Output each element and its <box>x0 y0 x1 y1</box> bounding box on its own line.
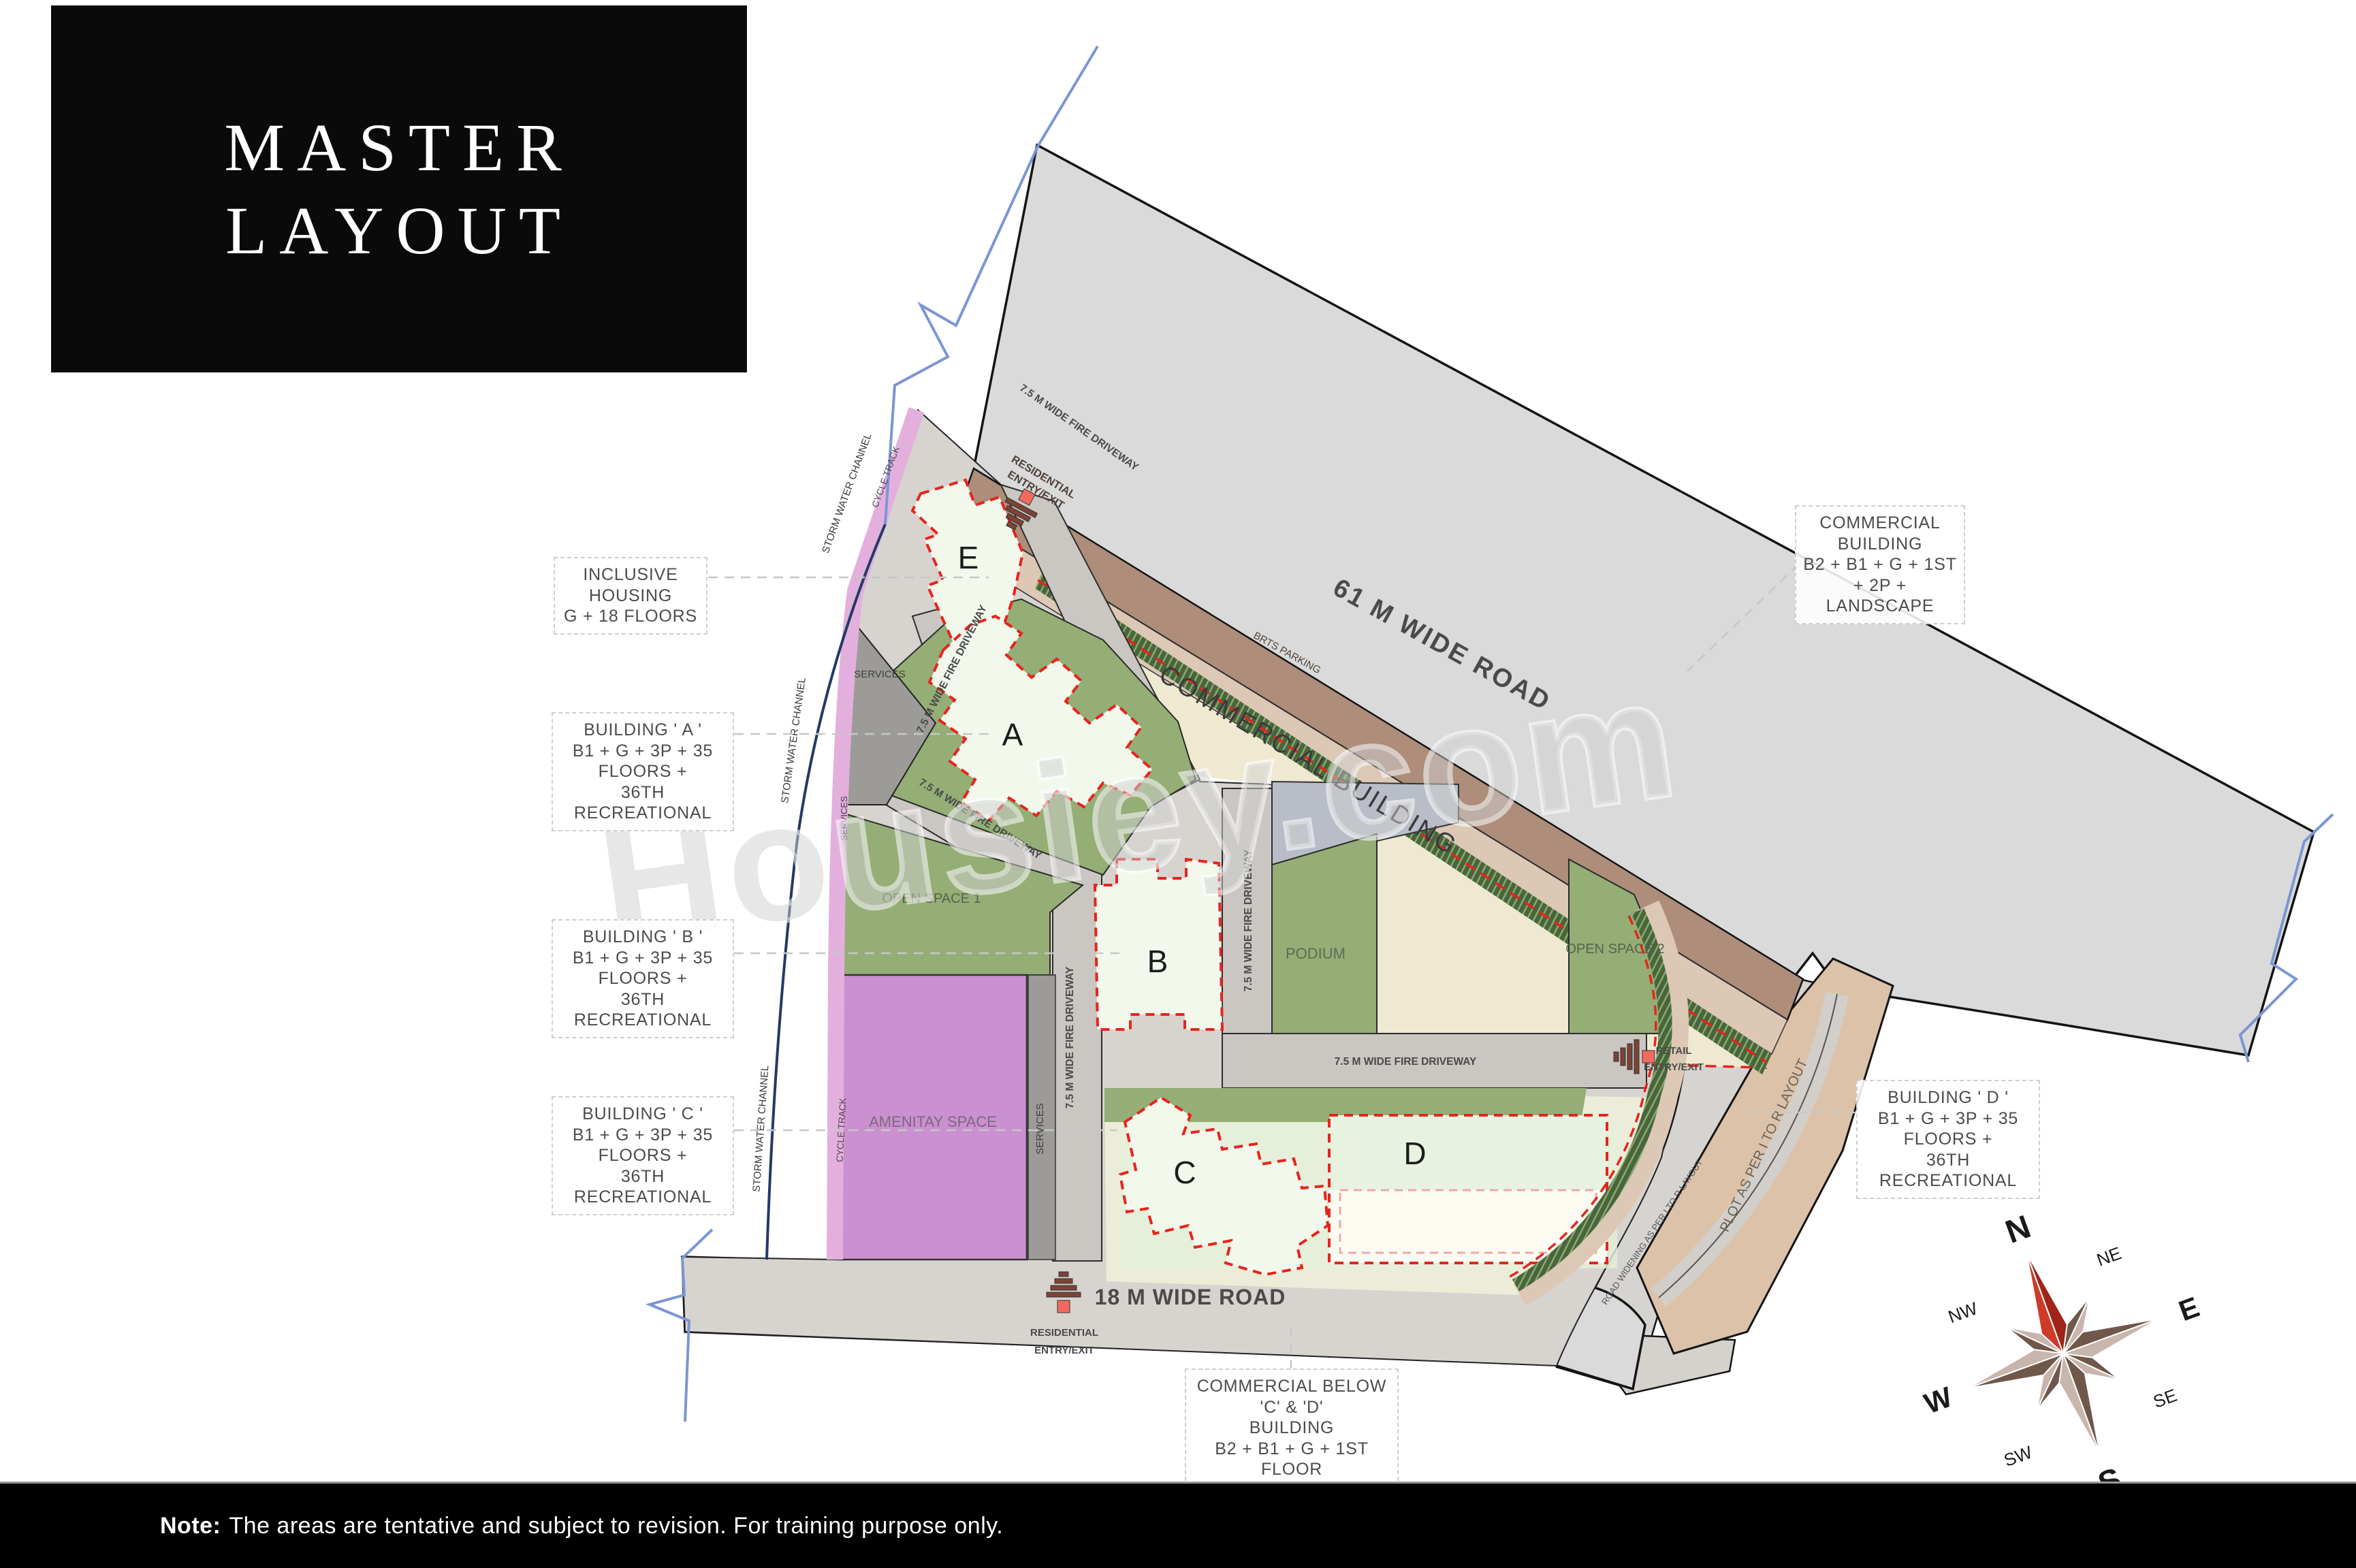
callout-building-a: BUILDING ' A ' B1 + G + 3P + 35 FLOORS +… <box>552 712 734 831</box>
services-label-3: SERVICES <box>1034 1103 1046 1155</box>
callout-line: B1 + G + 3P + 35 FLOORS + <box>1862 1108 2035 1150</box>
services-label-1: SERVICES <box>854 669 906 680</box>
building-e-label: E <box>958 540 979 575</box>
building-d-label: D <box>1403 1136 1426 1171</box>
callout-commercial: COMMERCIAL BUILDING B2 + B1 + G + 1ST + … <box>1795 505 1965 624</box>
callout-line: BUILDING ' B ' <box>557 927 729 948</box>
fire-driveway-label-6: 7.5 M WIDE FIRE DRIVEWAY <box>1064 966 1076 1108</box>
callout-line: LANDSCAPE <box>1800 596 1960 617</box>
note-label: Note: <box>160 1513 221 1539</box>
residential-bottom-line2: ENTRY/EXIT <box>1034 1345 1094 1356</box>
callout-line: INCLUSIVE HOUSING <box>559 564 702 606</box>
callout-building-d: BUILDING ' D ' B1 + G + 3P + 35 FLOORS +… <box>1856 1080 2040 1199</box>
callout-line: 36TH RECREATIONAL <box>557 989 729 1031</box>
building-c-label: C <box>1173 1155 1196 1190</box>
note-bar: Note:The areas are tentative and subject… <box>0 1482 2356 1568</box>
callout-line: 36TH RECREATIONAL <box>557 782 729 824</box>
callout-line: 36TH RECREATIONAL <box>557 1166 729 1208</box>
callout-line: B2 + B1 + G + 1ST + 2P + <box>1800 554 1960 596</box>
title-line2: LAYOUT <box>225 189 573 272</box>
callout-line: COMMERCIAL BELOW 'C' & 'D' <box>1190 1376 1393 1418</box>
callout-line: BUILDING ' A ' <box>557 720 729 741</box>
callout-building-c: BUILDING ' C ' B1 + G + 3P + 35 FLOORS +… <box>552 1096 734 1215</box>
callout-line: B1 + G + 3P + 35 FLOORS + <box>557 948 729 989</box>
podium-label: PODIUM <box>1286 945 1346 962</box>
building-b-label: B <box>1147 944 1168 979</box>
callout-line: B1 + G + 3P + 35 FLOORS + <box>557 741 729 782</box>
callout-line: BUILDING <box>1190 1418 1393 1439</box>
title-block: MASTER LAYOUT <box>51 5 747 372</box>
fire-driveway-label-5: 7.5 M WIDE FIRE DRIVEWAY <box>1335 1056 1477 1068</box>
callout-building-b: BUILDING ' B ' B1 + G + 3P + 35 FLOORS +… <box>552 919 734 1038</box>
master-layout-page: { "title": {"line1": "MASTER", "line2": … <box>0 0 2356 1566</box>
callout-line: BUILDING ' D ' <box>1862 1087 2035 1108</box>
amenity-label: AMENITAY SPACE <box>869 1113 997 1130</box>
callout-line: BUILDING ' C ' <box>557 1104 729 1125</box>
note-text: The areas are tentative and subject to r… <box>229 1513 1003 1539</box>
callout-line: B1 + G + 3P + 35 FLOORS + <box>557 1125 729 1166</box>
callout-line: COMMERCIAL BUILDING <box>1800 513 1960 554</box>
callout-inclusive-housing: INCLUSIVE HOUSING G + 18 FLOORS <box>554 557 707 635</box>
retail-line1: RETAIL <box>1655 1045 1691 1057</box>
building-d-area <box>1329 1115 1607 1190</box>
retail-line2: ENTRY/EXIT <box>1644 1061 1704 1073</box>
road-18m-label: 18 M WIDE ROAD <box>1095 1285 1286 1309</box>
title-line1: MASTER <box>224 106 574 189</box>
callout-line: G + 18 FLOORS <box>559 606 702 627</box>
callout-line: B2 + B1 + G + 1ST FLOOR <box>1190 1439 1393 1480</box>
callout-line: 36TH RECREATIONAL <box>1862 1150 2035 1191</box>
open-space-2-label: OPEN SPACE 2 <box>1565 942 1664 957</box>
callout-commercial-below: COMMERCIAL BELOW 'C' & 'D' BUILDING B2 +… <box>1185 1369 1399 1488</box>
residential-bottom-line1: RESIDENTIAL <box>1030 1327 1098 1339</box>
note-text-row: Note:The areas are tentative and subject… <box>160 1513 1003 1539</box>
